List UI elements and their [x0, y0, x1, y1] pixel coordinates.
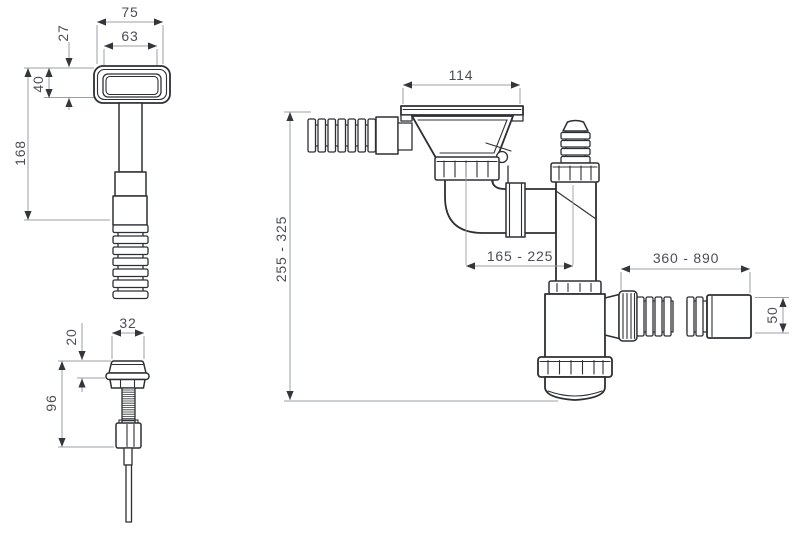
drain-pin-assembly: 32 20 96: [43, 315, 149, 522]
dimension-horizontal-range-label: 165 - 225: [487, 248, 553, 264]
trap-outlet-nut: [605, 291, 637, 341]
dimension-head-height-label: 40: [30, 75, 46, 92]
dimension-pin-length-label: 96: [43, 394, 59, 411]
dimension-cap-height-label: 20: [63, 328, 79, 345]
dimension-hose-range-label: 360 - 890: [653, 250, 719, 266]
dimension-hose-range: 360 - 890: [621, 250, 750, 293]
outlet-hose-2: [687, 297, 707, 336]
strainer-nut: [435, 157, 499, 180]
pin-cap: [109, 361, 146, 373]
pin-threaded-rod: [122, 388, 135, 424]
dimension-pin-length: 96: [43, 361, 114, 447]
dimension-length-label: 168: [12, 140, 28, 166]
pin-rod: [124, 448, 132, 522]
dimension-height-range-label: 255 - 325: [273, 216, 289, 282]
dimension-outlet-diameter: 50: [755, 298, 789, 334]
trap-body: [545, 294, 605, 358]
dishwasher-connector: [561, 121, 590, 164]
dimension-outer-width-label: 75: [121, 4, 138, 20]
inlet-connector: [376, 117, 412, 154]
tee-nut-top: [551, 163, 599, 182]
dimension-cap-width: 32: [112, 315, 144, 359]
dimension-head-height: 40: [24, 68, 94, 98]
overflow-hose: [113, 225, 148, 299]
dimension-cap-height: 20: [58, 323, 111, 392]
tee-nut-bottom: [549, 281, 601, 294]
technical-drawing-canvas: 75 63 27 40 168: [0, 0, 800, 537]
trap-cup: [545, 377, 605, 400]
dimension-depth-label: 27: [55, 24, 71, 41]
pin-connector: [116, 420, 141, 448]
dimension-strainer-width: 114: [403, 67, 520, 104]
overflow-inlet-hose: [308, 119, 376, 152]
outlet-cuff: [707, 295, 751, 338]
pin-flange: [106, 373, 149, 380]
overflow-stem: [119, 103, 142, 172]
dimension-strainer-width-label: 114: [449, 67, 474, 83]
siphon-assembly: 114 255 - 325: [273, 67, 789, 401]
pin-nut: [110, 380, 145, 389]
dimension-inner-width-label: 63: [121, 28, 138, 44]
trap-nut: [538, 357, 612, 377]
outlet-hose-1: [637, 297, 673, 336]
overflow-connector: [113, 172, 147, 225]
dimension-outlet-diameter-label: 50: [764, 306, 780, 323]
strainer-basket: [412, 116, 513, 158]
adjustment-sleeve: [506, 183, 525, 237]
overflow-head: [94, 66, 170, 103]
dimension-cap-width-label: 32: [119, 315, 136, 331]
overflow-assembly: 75 63 27 40 168: [12, 4, 170, 299]
